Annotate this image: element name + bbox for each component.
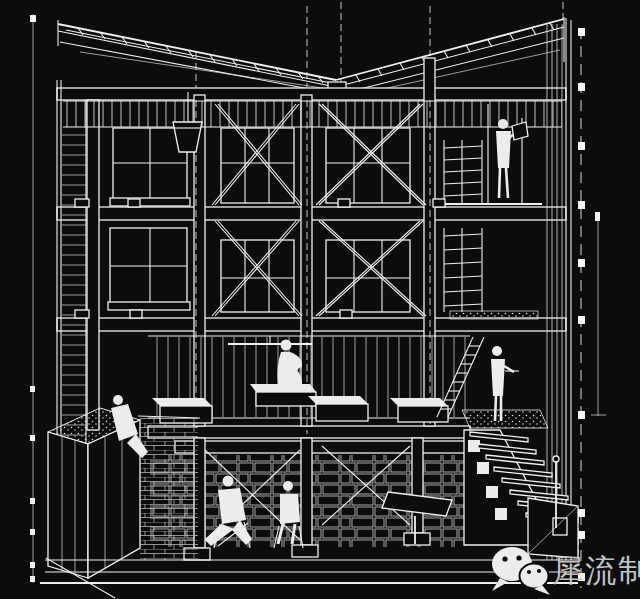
stair-landing-stipple <box>462 410 548 428</box>
shelf-unit-upper <box>444 140 482 205</box>
clerestory-stud-band <box>63 101 562 127</box>
watermark-text: 犀流制报 <box>552 553 640 588</box>
gravel-strip <box>450 311 538 319</box>
registration-line-left <box>30 14 36 583</box>
drawing-canvas: 犀流制报 <box>0 0 640 599</box>
shelf-unit-lower <box>444 228 482 312</box>
watermark: 犀流制报 <box>492 547 640 595</box>
figure-worker-upper <box>496 119 528 198</box>
story-3-windows <box>110 128 410 206</box>
right-wall-siding <box>544 24 565 560</box>
building-section-drawing: 犀流制报 <box>0 0 640 599</box>
brick-wall <box>138 416 200 560</box>
dimension-line <box>591 212 606 416</box>
registration-line-right <box>578 28 585 588</box>
